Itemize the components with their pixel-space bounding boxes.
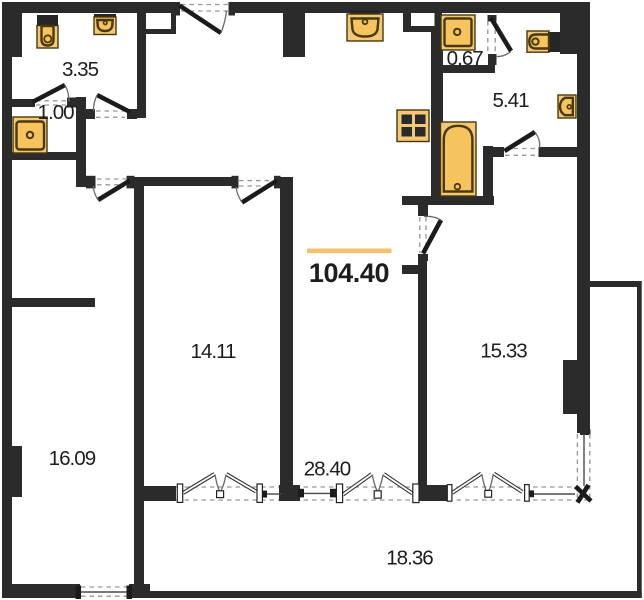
svg-text:104.40: 104.40 xyxy=(309,258,389,288)
svg-text:14.11: 14.11 xyxy=(190,340,236,363)
svg-text:15.33: 15.33 xyxy=(480,340,527,363)
svg-text:28.40: 28.40 xyxy=(304,458,351,481)
svg-text:1.00: 1.00 xyxy=(38,101,75,124)
svg-text:16.09: 16.09 xyxy=(49,447,96,470)
svg-text:5.41: 5.41 xyxy=(492,89,529,112)
svg-text:0.67: 0.67 xyxy=(447,47,484,70)
svg-text:3.35: 3.35 xyxy=(62,58,99,81)
svg-text:18.36: 18.36 xyxy=(386,547,433,570)
